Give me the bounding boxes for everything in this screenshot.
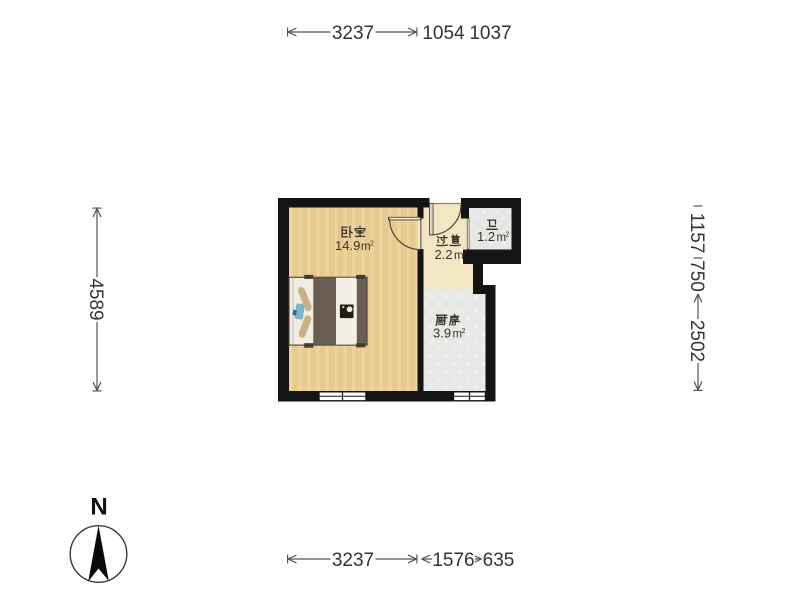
svg-text:14.9: 14.9 xyxy=(335,238,360,253)
svg-text:4589: 4589 xyxy=(85,278,106,320)
svg-text:N: N xyxy=(90,494,107,521)
svg-text:2.2: 2.2 xyxy=(435,247,453,262)
svg-text:2: 2 xyxy=(506,232,510,239)
svg-text:2: 2 xyxy=(370,241,374,248)
svg-text:3237: 3237 xyxy=(332,550,374,571)
svg-text:1157: 1157 xyxy=(686,213,707,254)
svg-text:635: 635 xyxy=(483,550,515,571)
svg-text:3.9: 3.9 xyxy=(433,326,451,341)
svg-text:1054: 1054 xyxy=(422,23,465,44)
svg-text:1.2: 1.2 xyxy=(477,229,495,244)
svg-text:750: 750 xyxy=(686,260,707,292)
svg-text:1037: 1037 xyxy=(469,23,511,44)
svg-text:2: 2 xyxy=(463,250,467,257)
svg-text:3237: 3237 xyxy=(332,23,374,44)
svg-text:2: 2 xyxy=(462,328,466,335)
svg-text:2502: 2502 xyxy=(686,320,707,362)
svg-text:1576: 1576 xyxy=(432,550,474,571)
